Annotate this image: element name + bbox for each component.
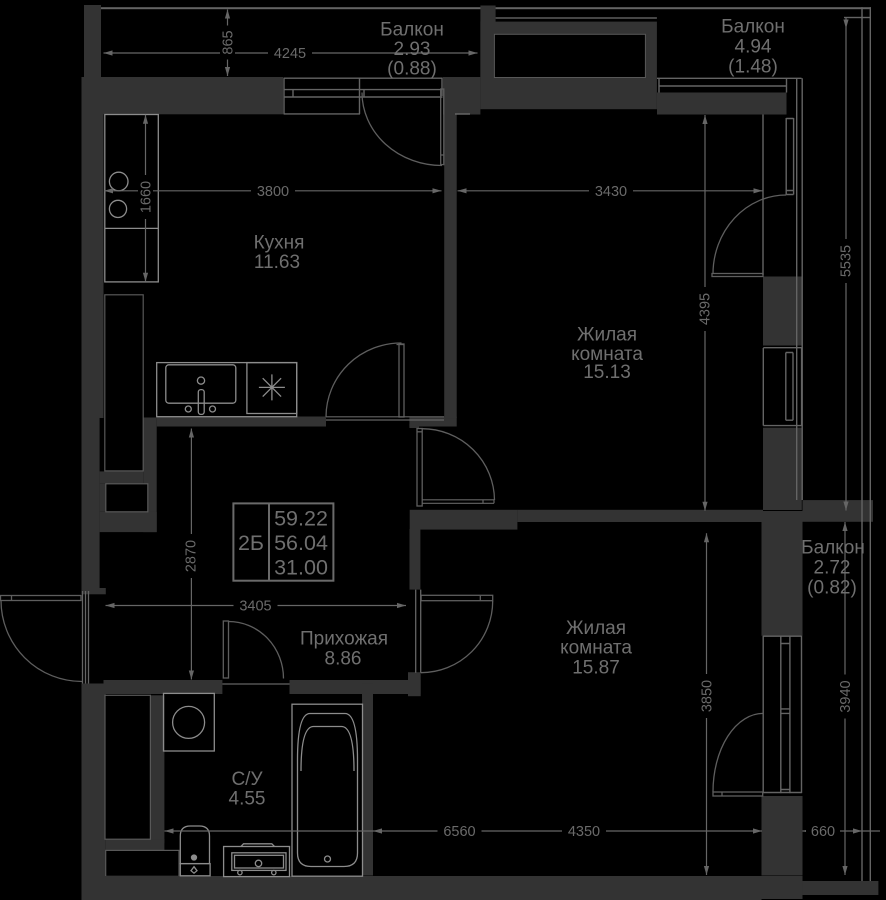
svg-text:С/У: С/У bbox=[231, 769, 263, 790]
svg-text:Балкон: Балкон bbox=[380, 20, 444, 41]
svg-text:2.72: 2.72 bbox=[814, 558, 851, 579]
svg-text:(0.88): (0.88) bbox=[387, 59, 437, 80]
svg-text:660: 660 bbox=[811, 824, 835, 840]
svg-text:Балкон: Балкон bbox=[801, 538, 865, 559]
svg-text:3430: 3430 bbox=[595, 184, 627, 200]
svg-text:865: 865 bbox=[221, 30, 237, 54]
svg-text:Жилая: Жилая bbox=[566, 618, 626, 639]
svg-text:Кухня: Кухня bbox=[254, 233, 305, 254]
svg-text:6560: 6560 bbox=[443, 824, 475, 840]
svg-text:2Б: 2Б bbox=[238, 531, 264, 555]
svg-text:59.22: 59.22 bbox=[274, 507, 328, 531]
svg-text:3800: 3800 bbox=[257, 184, 289, 200]
svg-text:4395: 4395 bbox=[698, 293, 714, 325]
svg-text:4350: 4350 bbox=[568, 824, 600, 840]
svg-text:(0.82): (0.82) bbox=[807, 578, 857, 599]
svg-text:3940: 3940 bbox=[838, 680, 854, 712]
svg-text:4.94: 4.94 bbox=[735, 37, 772, 58]
svg-text:4245: 4245 bbox=[274, 46, 306, 62]
svg-text:3850: 3850 bbox=[700, 680, 716, 712]
svg-text:56.04: 56.04 bbox=[274, 531, 328, 555]
svg-text:4.55: 4.55 bbox=[229, 789, 266, 810]
svg-text:3405: 3405 bbox=[239, 599, 271, 615]
svg-text:2870: 2870 bbox=[184, 540, 200, 572]
svg-text:Прихожая: Прихожая bbox=[300, 629, 388, 650]
svg-text:Жилая: Жилая bbox=[577, 325, 637, 346]
svg-text:Балкон: Балкон bbox=[721, 17, 785, 38]
svg-text:2.93: 2.93 bbox=[394, 39, 431, 60]
svg-text:15.87: 15.87 bbox=[572, 658, 620, 679]
svg-text:(1.48): (1.48) bbox=[728, 57, 778, 78]
svg-text:1660: 1660 bbox=[139, 181, 155, 213]
svg-text:8.86: 8.86 bbox=[325, 649, 362, 670]
svg-text:комната: комната bbox=[560, 638, 632, 659]
svg-text:11.63: 11.63 bbox=[254, 252, 300, 273]
svg-text:31.00: 31.00 bbox=[274, 556, 328, 580]
svg-text:15.13: 15.13 bbox=[583, 362, 631, 383]
svg-text:5535: 5535 bbox=[839, 245, 855, 277]
